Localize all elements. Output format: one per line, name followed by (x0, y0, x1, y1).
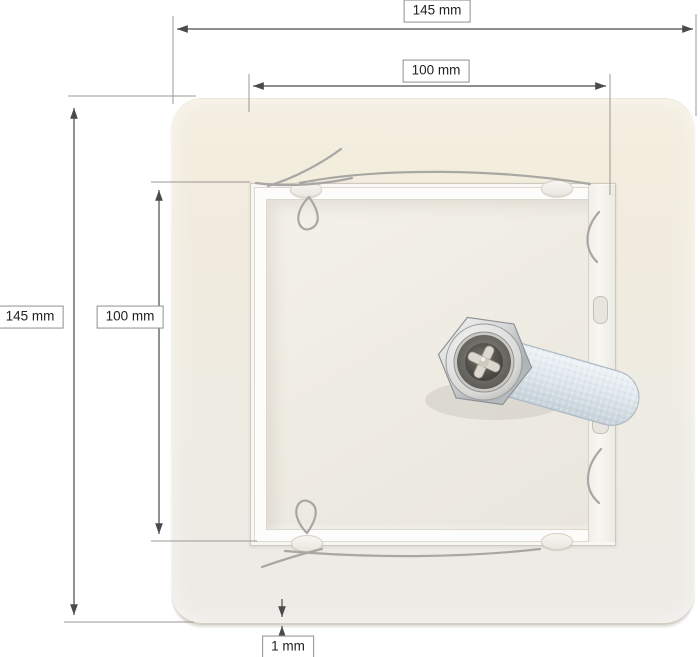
diagram-overlay (0, 0, 700, 657)
dimension-label-inner-width: 100 mm (403, 60, 470, 83)
product-dimension-diagram: 145 mm 100 mm 145 mm 100 mm 1 mm (0, 0, 700, 657)
dimension-label-inner-height: 100 mm (97, 306, 164, 329)
dimension-label-edge-thickness: 1 mm (262, 636, 314, 657)
dimension-lines (74, 29, 693, 638)
cam-lock (425, 317, 645, 431)
dimension-label-outer-height: 145 mm (0, 306, 63, 329)
dimension-label-outer-width: 145 mm (404, 0, 471, 22)
